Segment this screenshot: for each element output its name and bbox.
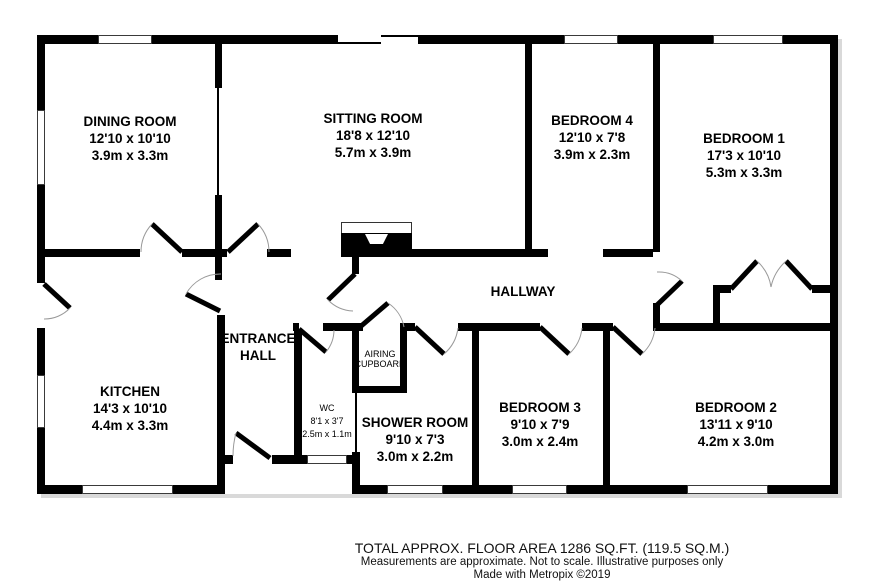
room-name: BEDROOM 4 xyxy=(551,112,633,129)
room-size-imperial: 9'10 x 7'9 xyxy=(499,416,581,433)
room-size-imperial: 18'8 x 12'10 xyxy=(324,127,423,144)
wall xyxy=(443,485,512,494)
window xyxy=(713,35,783,44)
room-name: KITCHEN xyxy=(92,383,169,400)
wall xyxy=(225,455,233,464)
room-name: CUPBOARD xyxy=(354,359,405,369)
room-size-metric: 3.0m x 2.2m xyxy=(362,448,469,465)
room-size-metric: 3.9m x 3.3m xyxy=(84,147,177,164)
wall xyxy=(37,35,45,110)
room-label-entrance-hall: ENTRANCE HALL xyxy=(220,330,295,364)
room-name: WC xyxy=(302,402,352,415)
room-size-metric: 4.4m x 3.3m xyxy=(92,417,169,434)
wall xyxy=(618,35,713,44)
window xyxy=(37,110,45,185)
window xyxy=(98,35,152,44)
wall xyxy=(418,35,564,44)
wall-thin xyxy=(217,88,219,195)
room-size-imperial: 12'10 x 7'8 xyxy=(551,129,633,146)
wall xyxy=(37,249,140,257)
wall xyxy=(267,249,291,257)
wall xyxy=(37,485,82,494)
room-name: HALL xyxy=(220,347,295,364)
room-label-wc: WC 8'1 x 3'7 2.5m x 1.1m xyxy=(302,402,352,441)
window xyxy=(512,485,567,494)
room-label-bedroom1: BEDROOM 1 17'3 x 10'10 5.3m x 3.3m xyxy=(703,130,785,181)
window xyxy=(307,455,347,464)
wall xyxy=(603,249,653,257)
wall xyxy=(215,44,222,88)
room-label-hallway: HALLWAY xyxy=(491,283,556,300)
wall xyxy=(215,257,222,280)
room-size-metric: 4.2m x 3.0m xyxy=(695,433,777,450)
room-name: HALLWAY xyxy=(491,283,556,300)
room-name: SITTING ROOM xyxy=(324,110,423,127)
room-label-sitting: SITTING ROOM 18'8 x 12'10 5.7m x 3.9m xyxy=(324,110,423,161)
room-label-bedroom2: BEDROOM 2 13'11 x 9'10 4.2m x 3.0m xyxy=(695,399,777,450)
wall-thin xyxy=(338,42,381,44)
disclaimer: Measurements are approximate. Not to sca… xyxy=(200,556,884,569)
room-label-dining: DINING ROOM 12'10 x 10'10 3.9m x 3.3m xyxy=(84,113,177,164)
window xyxy=(37,375,45,428)
wall xyxy=(182,249,227,257)
wall xyxy=(37,185,45,283)
window xyxy=(687,485,768,494)
wall xyxy=(352,452,360,494)
wall xyxy=(352,386,407,393)
wall xyxy=(352,252,359,274)
wall-thin xyxy=(355,393,357,455)
room-name: BEDROOM 3 xyxy=(499,399,581,416)
room-name: AIRING xyxy=(354,349,405,359)
room-size-metric: 3.0m x 2.4m xyxy=(499,433,581,450)
wall xyxy=(525,44,532,257)
wall xyxy=(472,331,479,485)
room-size-imperial: 9'10 x 7'3 xyxy=(362,431,469,448)
wall xyxy=(812,285,832,293)
total-floor-area: TOTAL APPROX. FLOOR AREA 1286 SQ.FT. (11… xyxy=(200,540,884,556)
wall xyxy=(37,35,98,44)
room-name: SHOWER ROOM xyxy=(362,414,469,431)
room-name: BEDROOM 1 xyxy=(703,130,785,147)
room-label-shower: SHOWER ROOM 9'10 x 7'3 3.0m x 2.2m xyxy=(362,414,469,465)
wall xyxy=(458,323,540,331)
wall xyxy=(582,323,613,331)
room-name: ENTRANCE xyxy=(220,330,295,347)
wall xyxy=(768,485,838,494)
room-label-bedroom4: BEDROOM 4 12'10 x 7'8 3.9m x 2.3m xyxy=(551,112,633,163)
room-size-imperial: 13'11 x 9'10 xyxy=(695,416,777,433)
room-size-metric: 5.3m x 3.3m xyxy=(703,164,785,181)
wall xyxy=(713,285,720,331)
room-size-imperial: 17'3 x 10'10 xyxy=(703,147,785,164)
window xyxy=(564,35,618,44)
room-size-metric: 2.5m x 1.1m xyxy=(302,428,352,441)
wall xyxy=(830,35,838,494)
room-name: BEDROOM 2 xyxy=(695,399,777,416)
room-label-airing-cupboard: AIRING CUPBOARD xyxy=(354,349,405,369)
room-size-imperial: 8'1 x 3'7 xyxy=(302,415,352,428)
wall xyxy=(215,195,222,257)
room-label-kitchen: KITCHEN 14'3 x 10'10 4.4m x 3.3m xyxy=(92,383,169,434)
wall xyxy=(152,35,338,44)
room-name: DINING ROOM xyxy=(84,113,177,130)
metropix-credit: Made with Metropix ©2019 xyxy=(200,569,884,582)
wall-thin xyxy=(381,35,418,37)
window xyxy=(387,485,443,494)
wall xyxy=(567,485,687,494)
window xyxy=(82,485,173,494)
room-size-imperial: 12'10 x 10'10 xyxy=(84,130,177,147)
room-size-metric: 3.9m x 2.3m xyxy=(551,146,633,163)
room-label-bedroom3: BEDROOM 3 9'10 x 7'9 3.0m x 2.4m xyxy=(499,399,581,450)
wall xyxy=(603,331,610,485)
room-size-imperial: 14'3 x 10'10 xyxy=(92,400,169,417)
floorplan: DINING ROOM 12'10 x 10'10 3.9m x 3.3m SI… xyxy=(0,0,886,584)
wall xyxy=(653,44,660,252)
room-size-metric: 5.7m x 3.9m xyxy=(324,144,423,161)
wall xyxy=(37,328,45,375)
wall xyxy=(655,323,832,331)
footer: TOTAL APPROX. FLOOR AREA 1286 SQ.FT. (11… xyxy=(200,540,884,582)
